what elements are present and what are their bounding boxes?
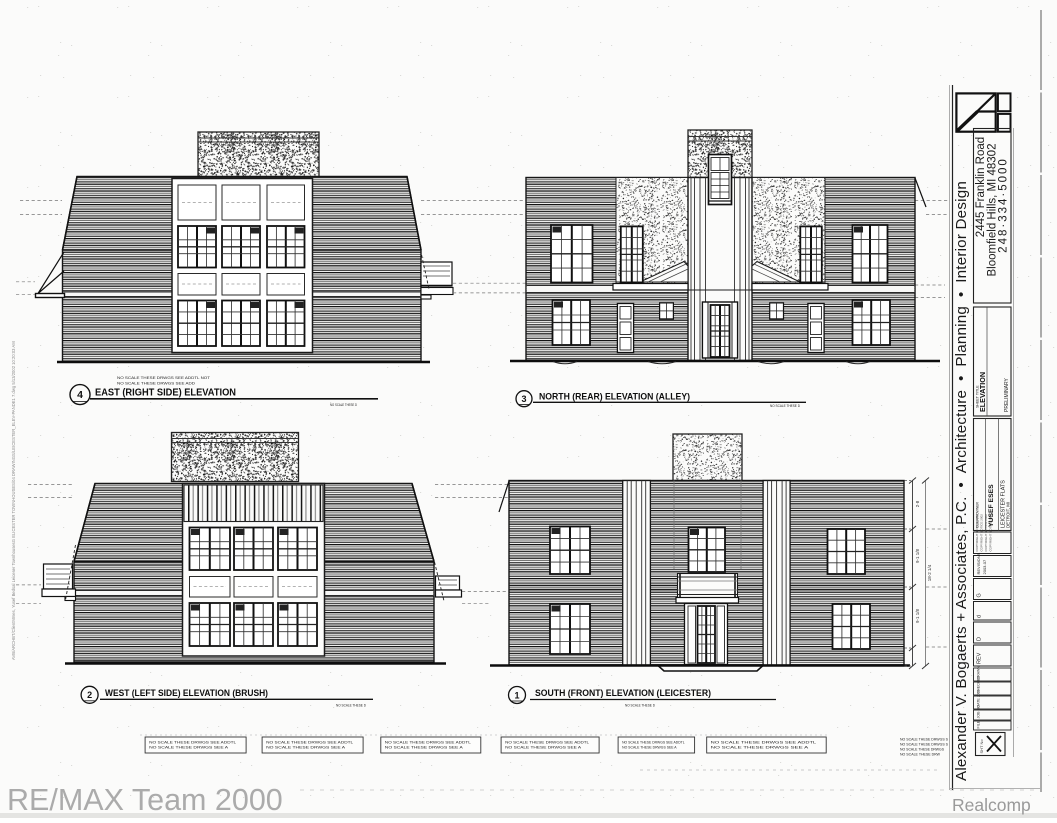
svg-text:NO SCALE THESE DRWGS: NO SCALE THESE DRWGS [900, 748, 944, 752]
svg-text:NO SCALE THESE DRWGS SEE A: NO SCALE THESE DRWGS SEE A [149, 746, 229, 750]
svg-text:EAST (RIGHT SIDE) ELEVATION: EAST (RIGHT SIDE) ELEVATION [95, 388, 236, 399]
svg-text:COPYRIGHT NOTICE 2002: COPYRIGHT NOTICE 2002 [980, 514, 984, 552]
svg-text:SHT No: SHT No [979, 739, 984, 754]
svg-text:DATE 2003: DATE 2003 [977, 689, 981, 707]
svg-text:2003-07: 2003-07 [982, 559, 987, 574]
svg-text:NO SCALE THESE DRWGS S: NO SCALE THESE DRWGS S [900, 743, 948, 747]
svg-text:COPYRIGHT NOTICE 2002: COPYRIGHT NOTICE 2002 [984, 514, 988, 552]
svg-text:d: d [977, 615, 983, 618]
svg-text:NO SCALE THESE DRWGS SEE ADDTL: NO SCALE THESE DRWGS SEE ADDTL [149, 741, 236, 745]
svg-text:NO SCALE THESE DRWGS SEE ADDTL: NO SCALE THESE DRWGS SEE ADDTL [385, 741, 471, 745]
svg-text:1: 1 [514, 690, 519, 700]
svg-text:2-8: 2-8 [915, 500, 920, 507]
svg-text:NO SCALE THESE DRWGS SEE A: NO SCALE THESE DRWGS SEE A [711, 746, 809, 750]
svg-text:NO SCALE THESE DRWGS S: NO SCALE THESE DRWGS S [900, 738, 948, 742]
svg-text:NO SCALE THESE DRWGS SEE A: NO SCALE THESE DRWGS SEE A [385, 746, 464, 750]
svg-text:COPYRIGHT NOTICE 2002: COPYRIGHT NOTICE 2002 [989, 514, 993, 552]
svg-text:D: D [977, 637, 983, 641]
svg-text:3: 3 [521, 394, 526, 404]
svg-text:2445 Franklin Road: 2445 Franklin Road [975, 137, 987, 237]
svg-text:9-1 1/8: 9-1 1/8 [915, 549, 920, 564]
svg-text:ELEVATION: ELEVATION [978, 372, 987, 412]
svg-text:NO SCALE THESE DRWGS SEE A: NO SCALE THESE DRWGS SEE A [622, 746, 677, 750]
svg-text:NO SCALE THESE D: NO SCALE THESE D [330, 403, 357, 407]
svg-text:PRELIMINARY: PRELIMINARY [1004, 378, 1010, 412]
svg-text:Realcomp: Realcomp [952, 795, 1031, 815]
svg-text:4: 4 [77, 389, 83, 401]
svg-text:NO SCALE THESE DRWGS SEE ADDTL: NO SCALE THESE DRWGS SEE ADDTL NOT [117, 376, 211, 380]
svg-text:RE/MAX Team 2000: RE/MAX Team 2000 [7, 783, 283, 817]
svg-text:NO SCALE THESE DRWGS SEE A: NO SCALE THESE DRWGS SEE A [266, 746, 346, 750]
svg-text:Alexander V. Bogaerts + Associ: Alexander V. Bogaerts + Associates, P.C.… [953, 181, 970, 781]
svg-text:G: G [977, 593, 983, 597]
svg-text:NO SCALE THESE DRWGS SEE ADDTL: NO SCALE THESE DRWGS SEE ADDTL [622, 741, 685, 745]
svg-text:NO SCALE THESE D: NO SCALE THESE D [336, 704, 366, 708]
svg-text:FILE: FILE [977, 720, 981, 728]
svg-text:COPYRIGHT NOTICE 2002: COPYRIGHT NOTICE 2002 [975, 514, 979, 552]
svg-text:NO SCALE THESE DRWGS SEE ADD: NO SCALE THESE DRWGS SEE ADD [117, 382, 195, 386]
svg-text:18-2 1/4: 18-2 1/4 [927, 564, 932, 581]
svg-text:NORTH (REAR) ELEVATION (ALLEY): NORTH (REAR) ELEVATION (ALLEY) [539, 392, 690, 403]
svg-text:JOB NO: JOB NO [977, 705, 981, 719]
svg-text:248·334·5000: 248·334·5000 [998, 157, 1010, 253]
svg-text:NO SCALE THESE D: NO SCALE THESE D [625, 704, 655, 708]
svg-text:NO SCALE THESE DRWGS SEE ADDTL: NO SCALE THESE DRWGS SEE ADDTL [505, 741, 589, 745]
svg-text:NO SCALE THESE DRWGS SEE A: NO SCALE THESE DRWGS SEE A [505, 746, 582, 750]
svg-text:REVISIONS: REVISIONS [976, 552, 981, 574]
svg-text:SOUTH (FRONT) ELEVATION (LEICE: SOUTH (FRONT) ELEVATION (LEICESTER) [535, 688, 711, 699]
svg-text:NO SCALE THESE DRWGS SEE ADDTL: NO SCALE THESE DRWGS SEE ADDTL [266, 741, 353, 745]
svg-text:REV: REV [977, 652, 983, 664]
svg-text:NO SCALE THESE DRWGS SEE ADDTL: NO SCALE THESE DRWGS SEE ADDTL [711, 741, 817, 745]
svg-text:DETROIT, MI: DETROIT, MI [1006, 502, 1011, 528]
svg-text:WEST (LEFT SIDE) ELEVATION (BR: WEST (LEFT SIDE) ELEVATION (BRUSH) [105, 688, 268, 699]
svg-text:2: 2 [87, 690, 92, 700]
svg-text:9-1 1/8: 9-1 1/8 [915, 609, 920, 624]
svg-text:AVB/ARCHBT/ClientMmes, Yusef B: AVB/ARCHBT/ClientMmes, Yusef Bedsal Leic… [11, 341, 16, 660]
svg-text:NO SCALE THESE D: NO SCALE THESE D [770, 404, 800, 408]
svg-text:NO SCALE THESE DRW: NO SCALE THESE DRW [900, 753, 940, 757]
